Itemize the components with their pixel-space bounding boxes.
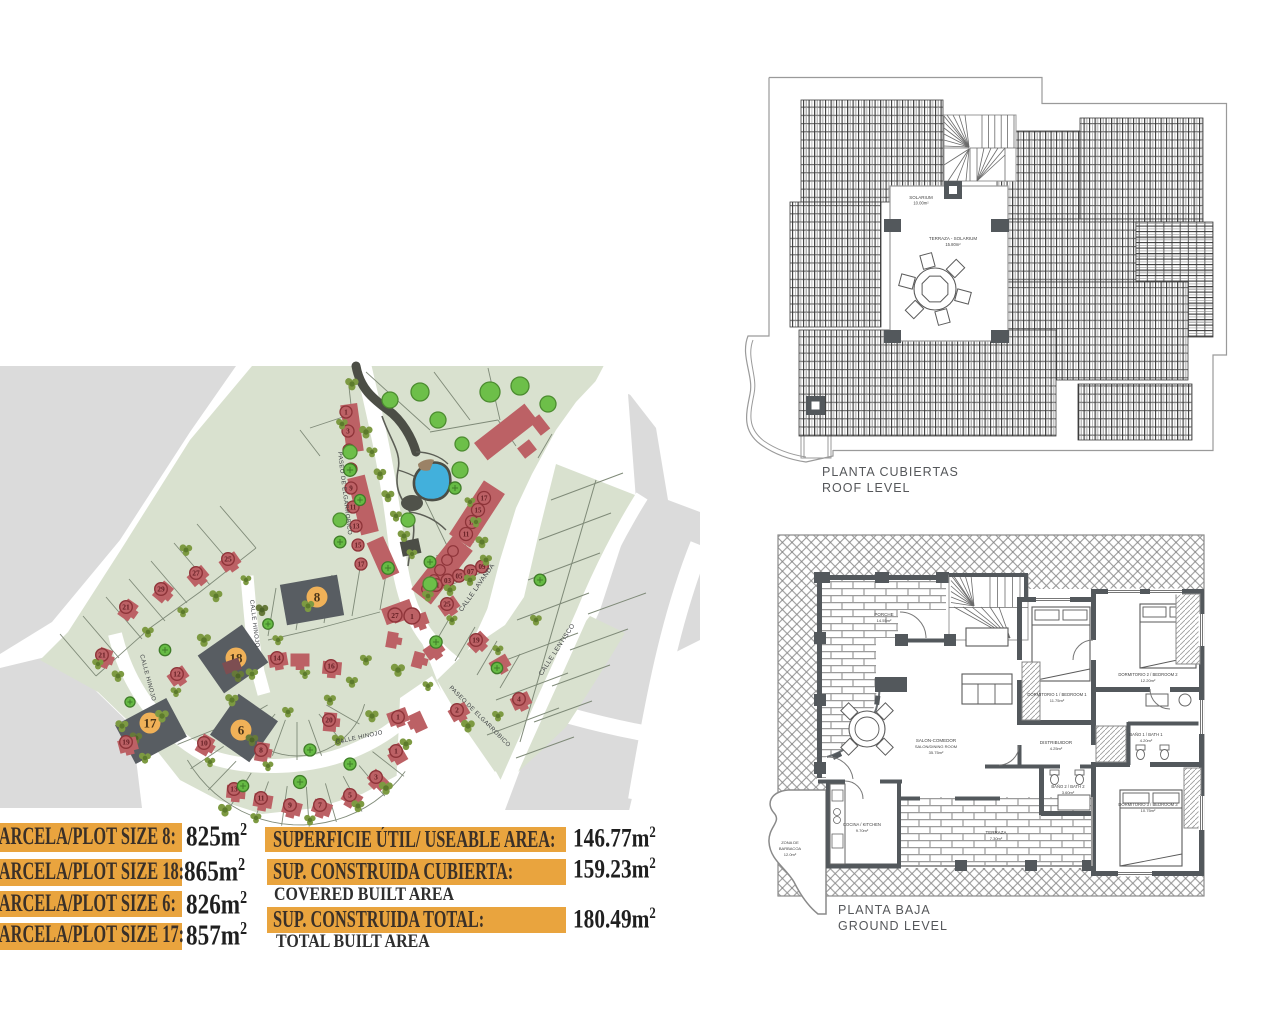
svg-text:14: 14 [273, 654, 281, 663]
svg-text:COCINA / KITCHEN: COCINA / KITCHEN [843, 822, 881, 827]
svg-text:8: 8 [314, 590, 321, 605]
svg-text:9.70m²: 9.70m² [856, 828, 869, 833]
svg-text:4.20m²: 4.20m² [1140, 738, 1153, 743]
svg-text:8: 8 [259, 746, 263, 755]
svg-text:29: 29 [157, 585, 165, 594]
svg-text:DORMITORIO 3 / BEDROOM 3: DORMITORIO 3 / BEDROOM 3 [1118, 802, 1178, 807]
svg-text:21: 21 [122, 603, 130, 612]
svg-text:6: 6 [238, 723, 245, 738]
svg-text:7.30m²: 7.30m² [990, 836, 1003, 841]
svg-text:DISTRIBUIDOR: DISTRIBUIDOR [1040, 740, 1073, 745]
svg-text:BAÑO 1 / BATH 1: BAÑO 1 / BATH 1 [1129, 732, 1163, 737]
svg-text:PLANTA BAJA: PLANTA BAJA [838, 903, 931, 917]
svg-text:DORMITORIO 1 / BEDROOM 1: DORMITORIO 1 / BEDROOM 1 [1027, 692, 1087, 697]
svg-text:1: 1 [396, 713, 400, 722]
svg-text:DORMITORIO 2 / BEDROOM 2: DORMITORIO 2 / BEDROOM 2 [1118, 672, 1178, 677]
svg-text:9: 9 [288, 801, 292, 810]
svg-text:1: 1 [410, 612, 414, 621]
svg-text:11: 11 [257, 794, 264, 803]
svg-text:07: 07 [467, 568, 475, 576]
svg-text:3: 3 [374, 773, 378, 782]
svg-text:12: 12 [173, 670, 181, 679]
svg-text:10.00m²: 10.00m² [913, 201, 929, 206]
svg-text:BARBACOA: BARBACOA [779, 846, 802, 851]
svg-text:14.55m²: 14.55m² [877, 618, 892, 623]
svg-text:PORCHE: PORCHE [874, 612, 893, 617]
svg-text:15: 15 [355, 541, 363, 549]
svg-text:15.80m²: 15.80m² [945, 242, 961, 247]
svg-text:17: 17 [144, 716, 158, 731]
svg-text:19: 19 [472, 636, 480, 645]
svg-text:BAÑO 2 / BATH 2: BAÑO 2 / BATH 2 [1051, 784, 1085, 789]
svg-text:4: 4 [517, 695, 521, 704]
svg-text:ROOF LEVEL: ROOF LEVEL [822, 481, 911, 495]
svg-text:17: 17 [481, 494, 489, 502]
svg-text:TERRAZA: TERRAZA [985, 830, 1006, 835]
svg-text:1: 1 [394, 747, 398, 756]
svg-text:5: 5 [348, 791, 352, 800]
svg-text:PLANTA CUBIERTAS: PLANTA CUBIERTAS [822, 465, 959, 479]
svg-text:SOLARIUM: SOLARIUM [909, 195, 933, 200]
svg-text:ZONA DE: ZONA DE [781, 840, 799, 845]
svg-text:9: 9 [349, 484, 353, 492]
svg-text:3.60m²: 3.60m² [1062, 790, 1075, 795]
svg-text:TERRAZA - SOLARIUM: TERRAZA - SOLARIUM [929, 236, 978, 241]
svg-text:17: 17 [358, 560, 366, 568]
svg-text:1: 1 [344, 408, 348, 416]
svg-text:35.75m²: 35.75m² [929, 750, 944, 755]
svg-text:12.20m²: 12.20m² [1141, 678, 1156, 683]
svg-text:27: 27 [391, 611, 399, 620]
svg-text:11.75m²: 11.75m² [1050, 698, 1065, 703]
svg-text:10: 10 [200, 739, 208, 748]
svg-text:11: 11 [463, 530, 470, 538]
svg-text:25: 25 [443, 600, 451, 609]
svg-text:11: 11 [350, 503, 357, 511]
svg-text:21: 21 [98, 651, 106, 660]
svg-text:13: 13 [353, 522, 361, 530]
svg-text:SALON-COMEDOR: SALON-COMEDOR [916, 738, 957, 743]
svg-text:4.25m²: 4.25m² [1050, 746, 1063, 751]
svg-text:03: 03 [444, 577, 452, 585]
svg-text:10.75m²: 10.75m² [1141, 808, 1156, 813]
svg-text:12.0m²: 12.0m² [784, 852, 797, 857]
svg-text:SALON/DINING ROOM: SALON/DINING ROOM [915, 744, 957, 749]
svg-text:2: 2 [455, 706, 459, 715]
svg-text:15: 15 [475, 506, 483, 514]
svg-text:05: 05 [456, 572, 464, 580]
svg-text:20: 20 [325, 716, 333, 725]
svg-text:7: 7 [318, 801, 322, 810]
svg-text:27: 27 [192, 569, 200, 578]
svg-text:GROUND LEVEL: GROUND LEVEL [838, 919, 948, 933]
svg-text:16: 16 [327, 662, 335, 671]
svg-text:19: 19 [122, 738, 130, 747]
svg-text:3: 3 [346, 427, 350, 435]
svg-text:25: 25 [224, 555, 232, 564]
